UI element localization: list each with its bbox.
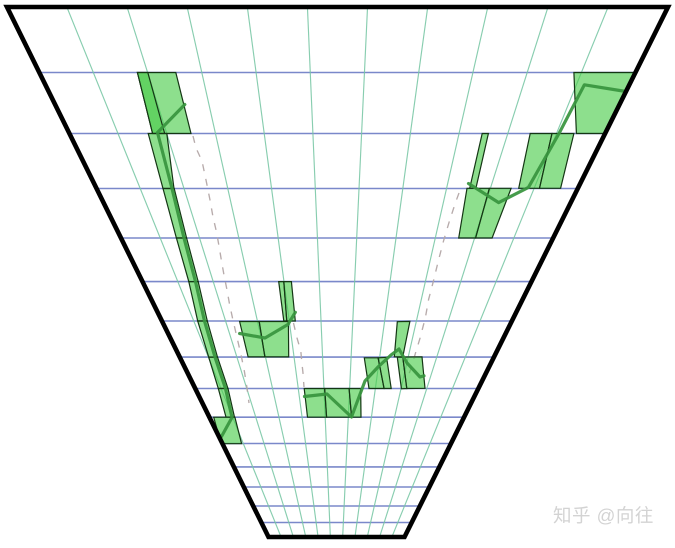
- svg-text:知乎 @向往: 知乎 @向往: [553, 505, 654, 526]
